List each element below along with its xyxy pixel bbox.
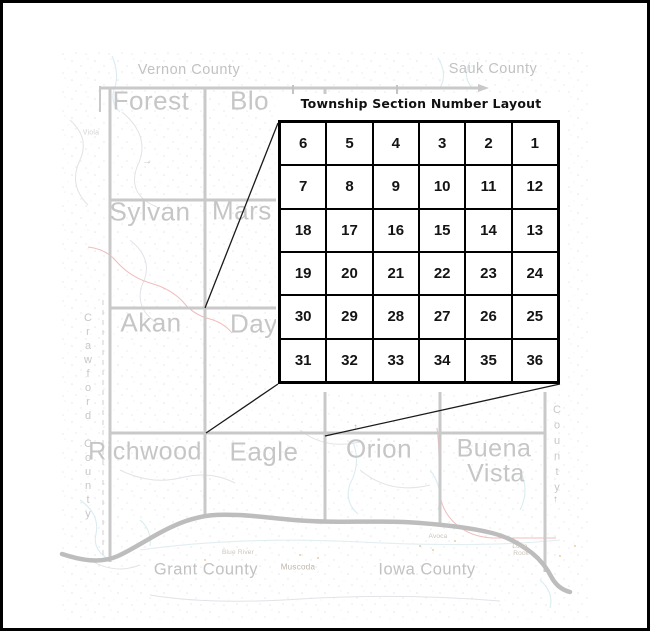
callout-leader-lines — [0, 0, 650, 631]
map-figure: ↑ ↑ → Forest Blo Sylvan Mars Akan Day Ri… — [0, 0, 650, 631]
